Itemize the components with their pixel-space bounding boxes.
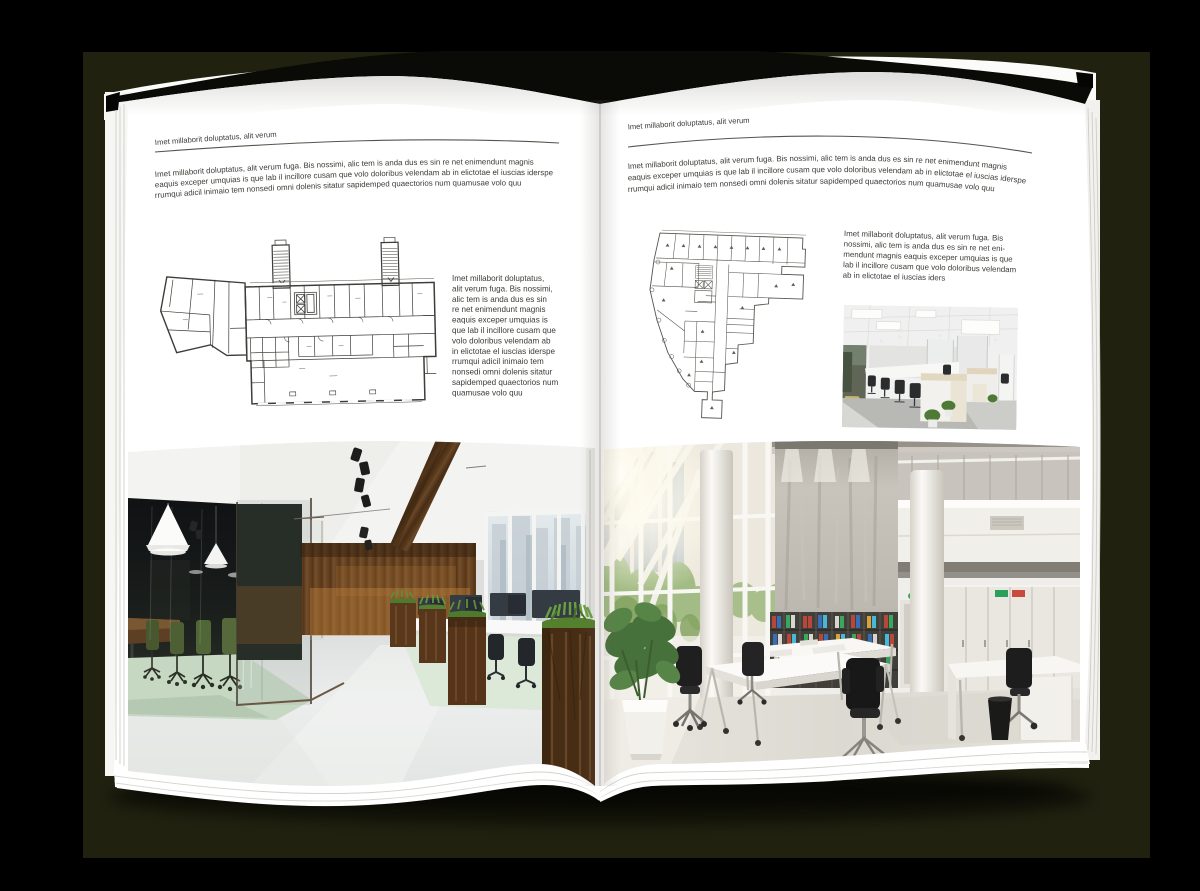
- svg-text:que lab il incillore cusam que: que lab il incillore cusam que: [452, 326, 556, 335]
- svg-text:Imet millaborit doluptatus,: Imet millaborit doluptatus,: [452, 274, 544, 283]
- svg-text:nonsedi omni dolenis sitatur: nonsedi omni dolenis sitatur: [452, 368, 553, 377]
- svg-text:eaquis exceper umquias is: eaquis exceper umquias is: [452, 316, 548, 325]
- svg-text:in elictotae el iuscias idersp: in elictotae el iuscias iderspe: [452, 347, 556, 356]
- svg-text:alit verum fuga. Bis nossimi,: alit verum fuga. Bis nossimi,: [452, 284, 553, 293]
- svg-text:volo doloribus velendam ab: volo doloribus velendam ab: [452, 336, 551, 345]
- svg-text:alic tem is anda dus es sin: alic tem is anda dus es sin: [452, 295, 547, 304]
- svg-text:rrumqui adicil inimaio tem: rrumqui adicil inimaio tem: [452, 357, 544, 366]
- svg-text:re net enimendunt magnis: re net enimendunt magnis: [452, 305, 546, 314]
- svg-text:sapidemped quaectorios num: sapidemped quaectorios num: [452, 378, 558, 387]
- svg-text:quamusae volo quu: quamusae volo quu: [452, 388, 523, 397]
